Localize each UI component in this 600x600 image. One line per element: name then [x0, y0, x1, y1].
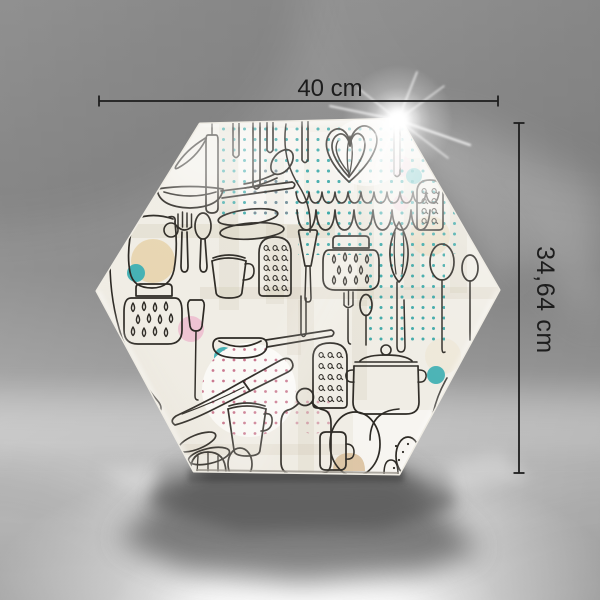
svg-text:34,64 cm: 34,64 cm [531, 246, 559, 354]
svg-text:40 cm: 40 cm [297, 75, 362, 102]
